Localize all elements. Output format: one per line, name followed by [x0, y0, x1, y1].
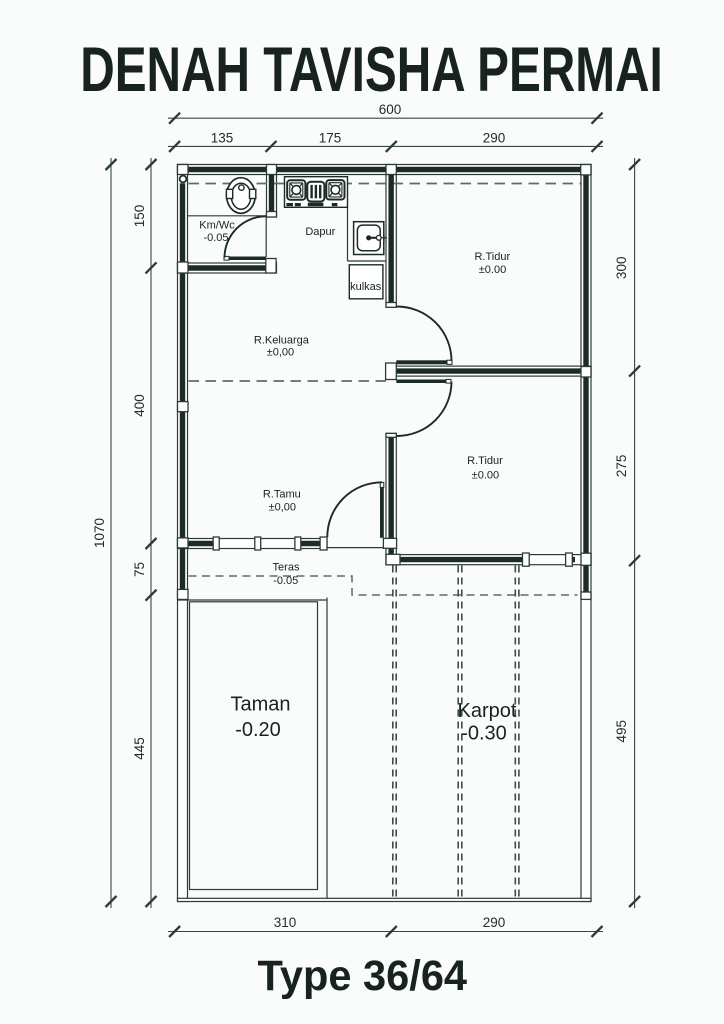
svg-text:300: 300 — [614, 257, 629, 280]
svg-text:275: 275 — [614, 455, 629, 478]
svg-text:-0.05: -0.05 — [203, 232, 228, 244]
svg-text:R.Tamu: R.Tamu — [263, 489, 301, 501]
svg-text:Km/Wc: Km/Wc — [199, 220, 235, 232]
svg-text:495: 495 — [614, 720, 629, 743]
svg-text:75: 75 — [132, 562, 147, 577]
svg-text:135: 135 — [211, 130, 234, 145]
svg-text:600: 600 — [379, 102, 402, 117]
svg-text:400: 400 — [132, 394, 147, 417]
svg-text:±0.00: ±0.00 — [472, 470, 499, 482]
svg-text:1070: 1070 — [92, 518, 107, 548]
svg-text:150: 150 — [132, 205, 147, 228]
svg-text:310: 310 — [274, 915, 297, 930]
svg-text:±0,00: ±0,00 — [269, 501, 296, 513]
svg-text:Teras: Teras — [273, 562, 300, 574]
svg-text:DENAH TAVISHA PERMAI: DENAH TAVISHA PERMAI — [80, 34, 663, 105]
svg-text:290: 290 — [483, 130, 506, 145]
svg-text:-0.05: -0.05 — [273, 575, 298, 587]
svg-text:-0.20: -0.20 — [235, 719, 281, 741]
svg-text:445: 445 — [132, 737, 147, 760]
svg-text:R.Keluarga: R.Keluarga — [254, 335, 310, 347]
svg-text:Taman: Taman — [230, 694, 290, 716]
svg-text:Karpot: Karpot — [458, 700, 517, 722]
svg-text:290: 290 — [483, 915, 506, 930]
svg-text:±0.00: ±0.00 — [479, 264, 506, 276]
svg-text:±0,00: ±0,00 — [267, 347, 294, 359]
svg-text:-0.30: -0.30 — [461, 723, 507, 745]
svg-text:R.Tidur: R.Tidur — [474, 251, 510, 263]
svg-text:kulkas: kulkas — [350, 281, 382, 293]
svg-text:175: 175 — [319, 130, 342, 145]
svg-text:Dapur: Dapur — [305, 226, 335, 238]
svg-text:R.Tidur: R.Tidur — [467, 455, 503, 467]
svg-text:Type 36/64: Type 36/64 — [258, 951, 468, 999]
